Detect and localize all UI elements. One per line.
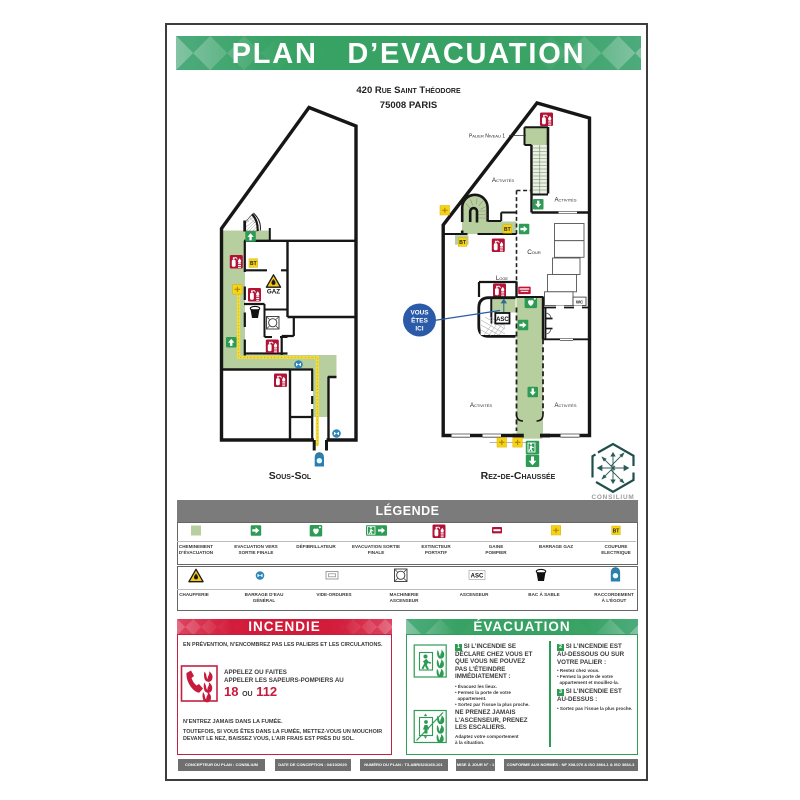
- svg-text:Loge: Loge: [496, 276, 509, 282]
- svg-text:VOUS: VOUS: [410, 310, 429, 317]
- svg-text:Palier Niveau 1: Palier Niveau 1: [469, 134, 505, 140]
- svg-text:ÊTES: ÊTES: [411, 316, 428, 325]
- svg-text:WC: WC: [576, 300, 584, 305]
- svg-text:ASC: ASC: [471, 574, 484, 580]
- svg-text:Activités: Activités: [492, 178, 514, 184]
- svg-text:Activités: Activités: [470, 403, 492, 409]
- svg-text:ASC: ASC: [496, 317, 509, 323]
- svg-text:GAZ: GAZ: [267, 289, 280, 296]
- svg-text:Activités: Activités: [554, 198, 576, 204]
- svg-text:Cour: Cour: [527, 249, 541, 256]
- svg-text:ICI: ICI: [415, 326, 423, 333]
- svg-text:CONSILIUM: CONSILIUM: [591, 494, 634, 501]
- svg-text:Activités: Activités: [554, 403, 576, 409]
